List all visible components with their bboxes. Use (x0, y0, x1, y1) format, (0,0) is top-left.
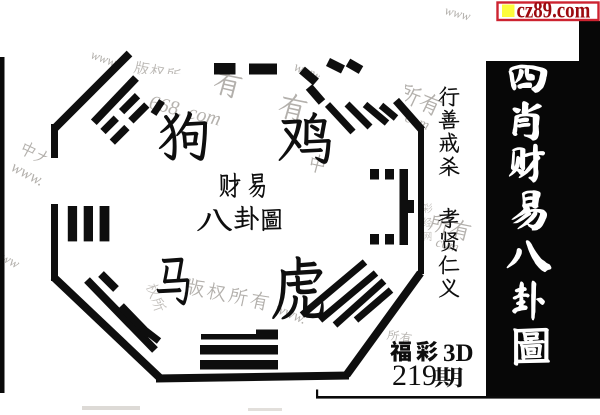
svg-text:219: 219 (392, 359, 437, 392)
svg-text:3D: 3D (443, 340, 474, 367)
svg-text:cz89.com: cz89.com (517, 0, 591, 23)
